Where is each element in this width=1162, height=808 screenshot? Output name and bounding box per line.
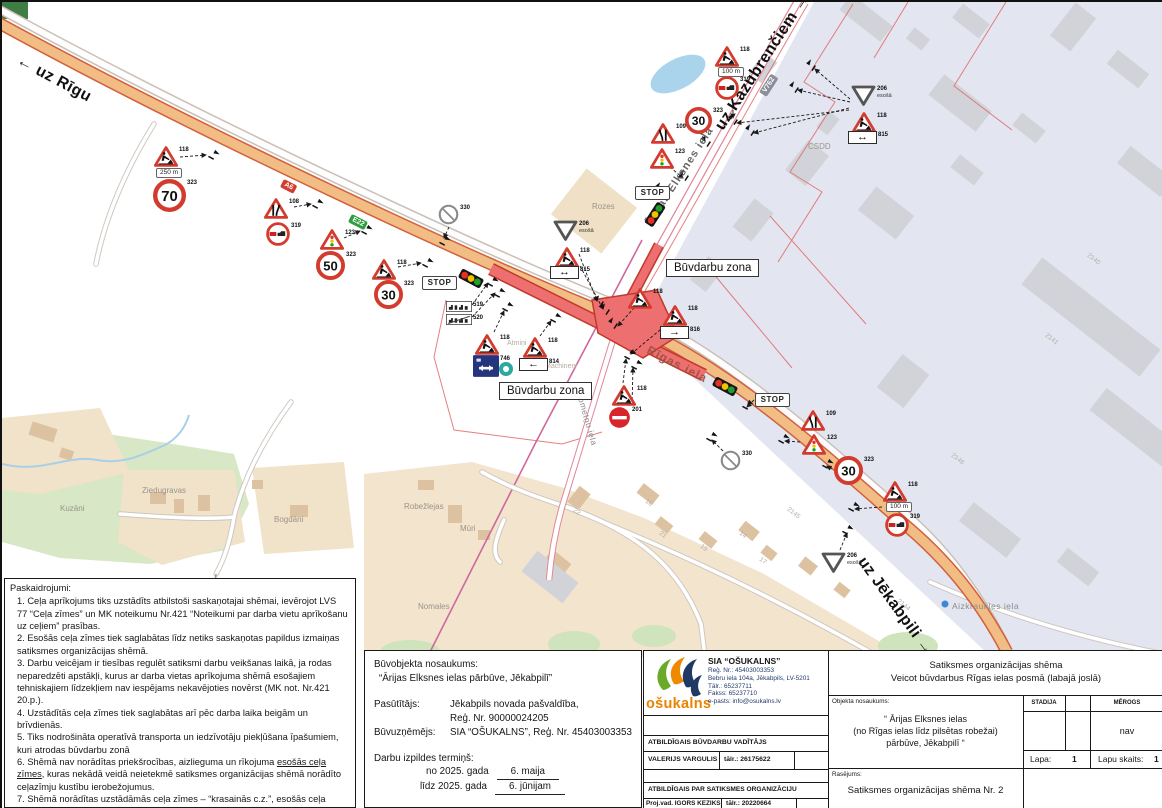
sign-118-roadworks: 118 xyxy=(523,337,558,358)
object-name-line: “ Ārijas Elksnes ielas xyxy=(828,713,1023,725)
sign-323-speed-limit: 50323 xyxy=(316,251,356,280)
resp-traffic-name: Proj.vad. IGORS KEZIKS xyxy=(646,800,721,807)
town-limit-plate: 520 xyxy=(446,314,483,325)
sign-road-narrows: 108 xyxy=(264,198,299,219)
arrow-plate: →816 xyxy=(660,326,700,339)
sign-123-signals-ahead: 123 xyxy=(320,229,355,250)
svg-text:50: 50 xyxy=(323,258,338,273)
stop-plate: STOP xyxy=(422,276,457,290)
sign-118-roadworks: 118 xyxy=(372,259,407,280)
sign-118-roadworks: 118 xyxy=(883,481,918,502)
map-label: Kuzāni xyxy=(60,504,84,513)
company-email: e-pasts: info@osukalns.lv xyxy=(708,698,810,706)
stop-plate: STOP xyxy=(635,186,670,200)
sign-118-roadworks: 118 xyxy=(154,146,189,167)
sign-330-existing: 330 xyxy=(720,450,752,471)
resp-build-phone: tālr.: 26175622 xyxy=(724,756,770,763)
sign-206-give-way-existing: 206esošā xyxy=(553,220,594,241)
sign-323-speed-limit: 30323 xyxy=(834,456,874,485)
term-from-label: no 2025. gada xyxy=(426,765,489,780)
sign-206-give-way-existing: 206esošā xyxy=(851,85,892,106)
term-to-value: 6. jūnijam xyxy=(495,780,565,795)
sign-road-narrows: 109 xyxy=(801,410,836,431)
construction-zone-label: Būvdarbu zona xyxy=(499,382,592,400)
note-item: 1. Ceļa aprīkojums tiks uzstādīts atbils… xyxy=(10,595,349,632)
svg-text:30: 30 xyxy=(841,463,856,478)
map-label: Ziedugravas xyxy=(142,486,186,495)
scheme-title-line1: Satiksmes organizācijas shēma xyxy=(828,660,1162,671)
stop-plate: STOP xyxy=(755,393,790,407)
note-item: 3. Darbu veicējam ir tiesības regulēt sa… xyxy=(10,657,349,706)
sign-323-speed-limit: 70323 xyxy=(153,179,197,212)
sign-118-roadworks: 118 xyxy=(852,112,887,133)
svg-text:30: 30 xyxy=(381,287,396,302)
sign-118-roadworks: 118 xyxy=(475,334,510,355)
map-label: Nomales xyxy=(418,602,450,611)
svg-text:70: 70 xyxy=(161,189,178,205)
sign-road-narrows: 109 xyxy=(651,123,686,144)
sign-118-roadworks: 118 xyxy=(715,46,750,67)
resp-build-name: VALERIJS VARGULIS xyxy=(648,756,717,763)
distance-plate: 100 m xyxy=(886,502,912,512)
company-phone: Tālr.: 65237711 xyxy=(708,683,810,691)
note-item: 6. Shēmā nav norādītas priekšrocības, ai… xyxy=(10,756,349,793)
map-label: CSDD xyxy=(808,142,831,151)
osukalns-logo-icon xyxy=(649,656,704,698)
rasejums-label: Rasējums: xyxy=(832,771,862,778)
term-to-label: līdz 2025. gada xyxy=(420,780,487,795)
scheme-title-line2: Veicot būvdarbus Rīgas ielas posmā (laba… xyxy=(828,673,1162,684)
construction-zone-label: Būvdarbu zona xyxy=(666,259,759,277)
company-name: SIA “OŠUKALNS” xyxy=(708,656,780,666)
sign-118-roadworks: 118 xyxy=(555,247,590,268)
merogs-value: nav xyxy=(1090,726,1162,736)
sign-123-signals-ahead: 123 xyxy=(802,434,837,455)
sign-319-no-overtaking: 319 xyxy=(266,222,301,246)
company-address: Bebru iela 104a, Jēkabpils, LV-5201 xyxy=(708,675,810,683)
term-from-value: 6. maija xyxy=(497,765,559,780)
sign-201-no-entry: 201 xyxy=(608,406,642,429)
client-value: Jēkabpils novada pašvaldība, xyxy=(450,699,579,710)
sign-323-speed-limit: 30323 xyxy=(374,280,414,309)
sign-330-existing: 330 xyxy=(438,204,470,225)
contractor-label: Būvuzņēmējs: xyxy=(374,726,450,740)
map-label: Bogdāni xyxy=(274,515,303,524)
lapa-label: Lapa: xyxy=(1030,754,1051,764)
lapu-skaits-value: 1 xyxy=(1154,754,1159,764)
rasejums-value: Satiksmes organizācijas shēma Nr. 2 xyxy=(828,785,1023,796)
bus-stop-icon xyxy=(942,601,949,608)
client-reg: Reģ. Nr. 90000024205 xyxy=(450,713,549,724)
town-limit-plate: 519 xyxy=(446,301,483,312)
map-label: Mūri xyxy=(460,524,476,533)
lapa-value: 1 xyxy=(1072,754,1077,764)
resp-traffic-phone: tālr.: 20220664 xyxy=(726,800,771,807)
note-item: 5. Tiks nodrošināta operatīvā transporta… xyxy=(10,731,349,756)
sign-206-give-way-existing: 206esošā xyxy=(821,552,862,573)
client-label: Pasūtītājs: xyxy=(374,698,450,726)
term-label: Darbu izpildes termiņš: xyxy=(374,752,632,766)
company-reg: Reģ. Nr.: 45403003353 xyxy=(708,667,810,675)
object-name-line: pārbūve, Jēkabpilī “ xyxy=(828,737,1023,749)
arrow-plate: ↔815 xyxy=(550,266,590,279)
project-title-label: Būvobjekta nosaukums: xyxy=(374,658,632,672)
map-label: Rozes xyxy=(592,202,615,211)
object-name-label: Objekta nosaukums: xyxy=(832,698,889,705)
sign-746-detour: 746 xyxy=(473,355,510,377)
notes-panel: Paskaidrojumi: 1. Ceļa aprīkojums tiks u… xyxy=(4,578,356,808)
contractor-value: SIA “OŠUKALNS”, Reģ. Nr. 45403003353 xyxy=(450,726,632,740)
merogs-label: MĒROGS xyxy=(1090,700,1162,706)
stadija-label: STADIJA xyxy=(1023,700,1065,706)
sign-323-speed-limit: 30323 xyxy=(685,107,723,134)
arrow-plate: ←814 xyxy=(519,358,559,371)
sign-118-roadworks: 118 xyxy=(612,385,647,406)
map-label: Robežlejas xyxy=(404,502,444,511)
arrow-plate: ↔815 xyxy=(848,131,888,144)
sign-123-signals-ahead: 123 xyxy=(650,148,685,169)
object-name-line: (no Rīgas ielas līdz pilsētas robežai) xyxy=(828,725,1023,737)
note-item: 4. Uzstādītās ceļa zīmes tiek saglabātas… xyxy=(10,707,349,732)
title-block: ošukalns SIA “OŠUKALNS” Reģ. Nr.: 454030… xyxy=(643,650,1162,808)
company-fax: Fakss: 65237710 xyxy=(708,690,810,698)
note-item: 2. Esošās ceļa zīmes tiek saglabātas līd… xyxy=(10,632,349,657)
distance-plate: 250 m xyxy=(156,168,182,178)
logo-wordmark: ošukalns xyxy=(646,696,711,712)
resp-build-header: ATBILDĪGAIS BŪVDARBU VADĪTĀJS xyxy=(648,739,767,746)
sign-319-no-overtaking: 319 xyxy=(715,76,750,100)
svg-text:30: 30 xyxy=(692,114,706,128)
lapu-skaits-label: Lapu skaits: xyxy=(1098,754,1143,764)
note-item: 7. Shēmā norādītas uzstādāmās ceļa zīmes… xyxy=(10,793,349,808)
project-title-value: “Ārijas Elksnes ielas pārbūve, Jēkabpilī… xyxy=(374,672,632,686)
sign-319-no-overtaking: 319 xyxy=(885,513,920,537)
resp-traffic-header: ATBILDĪGAIS PAR SATIKSMES ORGANIZĀCIJU xyxy=(648,786,797,793)
notes-title: Paskaidrojumi: xyxy=(10,582,349,594)
project-info-panel: Būvobjekta nosaukums: “Ārijas Elksnes ie… xyxy=(364,650,642,808)
sign-118-roadworks: 118 xyxy=(663,305,698,326)
traffic-scheme-page: ← uz Rīguuz Kazubrenčiem →uz Jēkabpili →… xyxy=(0,0,1162,808)
street-label-aizkraukles-iela: Aizkraukles iela xyxy=(952,601,1019,611)
sign-118-roadworks: 118 xyxy=(628,288,663,309)
